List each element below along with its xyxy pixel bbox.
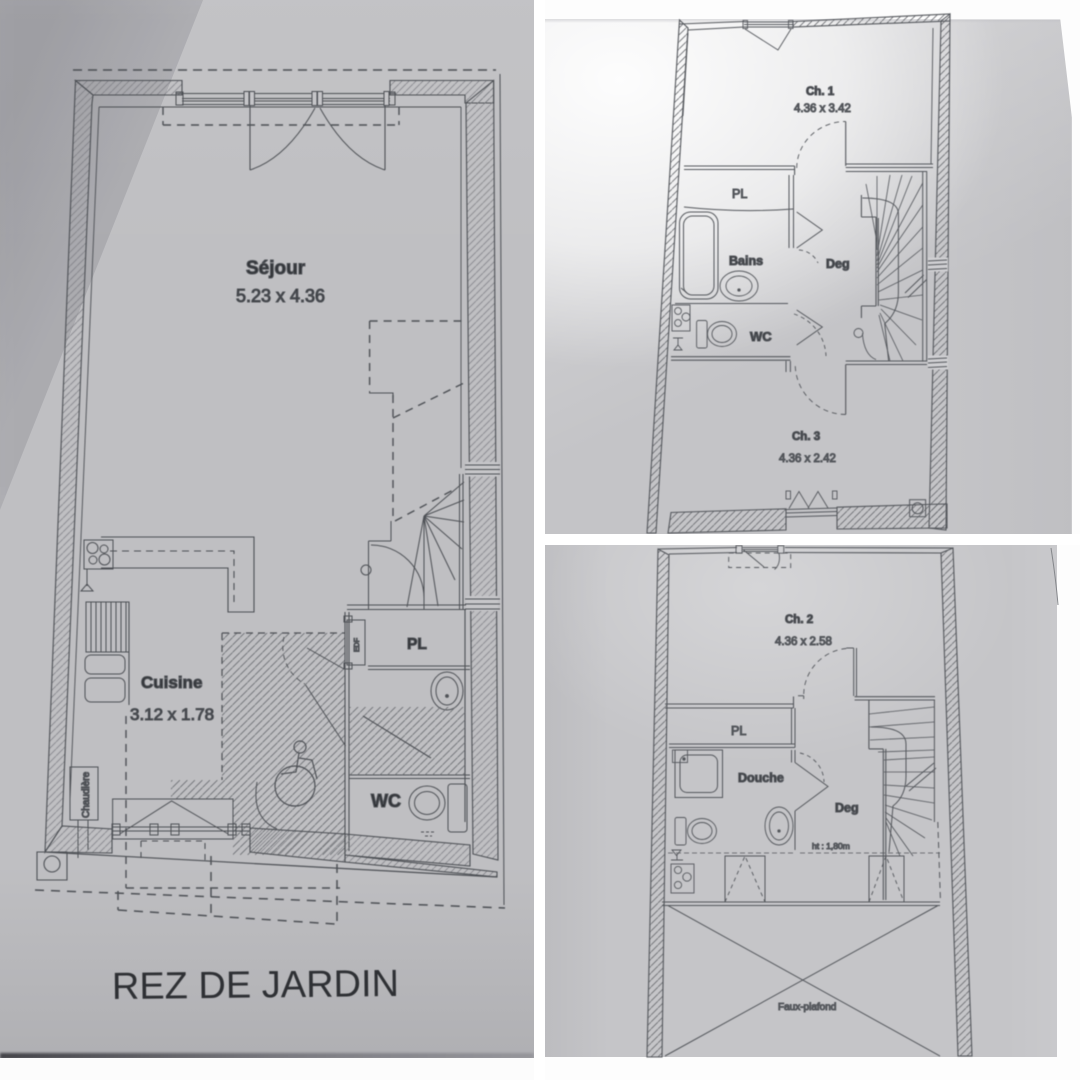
svg-text:Chaudière: Chaudière: [81, 771, 92, 818]
svg-text:PL: PL: [732, 187, 747, 201]
svg-text:PL: PL: [407, 636, 427, 653]
svg-text:Ch. 2: Ch. 2: [785, 614, 813, 626]
svg-text:EDF: EDF: [354, 638, 361, 652]
svg-text:WC: WC: [750, 329, 772, 344]
svg-text:Bains: Bains: [729, 254, 763, 268]
svg-text:Séjour: Séjour: [246, 258, 306, 279]
svg-text:ht : 1,80m: ht : 1,80m: [812, 841, 850, 851]
svg-text:4.36 x 3.42: 4.36 x 3.42: [794, 103, 851, 115]
svg-text:5.23 x 4.36: 5.23 x 4.36: [236, 286, 325, 306]
svg-text:4.36 x 2.58: 4.36 x 2.58: [775, 636, 832, 648]
svg-text:4.36 x 2.42: 4.36 x 2.42: [779, 453, 836, 465]
svg-text:PL: PL: [731, 724, 746, 738]
svg-text:WC: WC: [371, 791, 401, 811]
svg-text:Ch. 3: Ch. 3: [792, 431, 820, 443]
svg-text:Ch. 1: Ch. 1: [806, 86, 835, 98]
svg-text:Deg: Deg: [835, 801, 859, 815]
svg-text:3.12 x 1.78: 3.12 x 1.78: [130, 705, 214, 724]
svg-text:Cuisine: Cuisine: [141, 673, 202, 692]
svg-text:Douche: Douche: [738, 771, 784, 785]
svg-text:REZ DE JARDIN: REZ DE JARDIN: [112, 963, 400, 1008]
svg-text:Deg: Deg: [826, 257, 850, 271]
svg-text:Faux-plafond: Faux-plafond: [778, 1002, 836, 1013]
